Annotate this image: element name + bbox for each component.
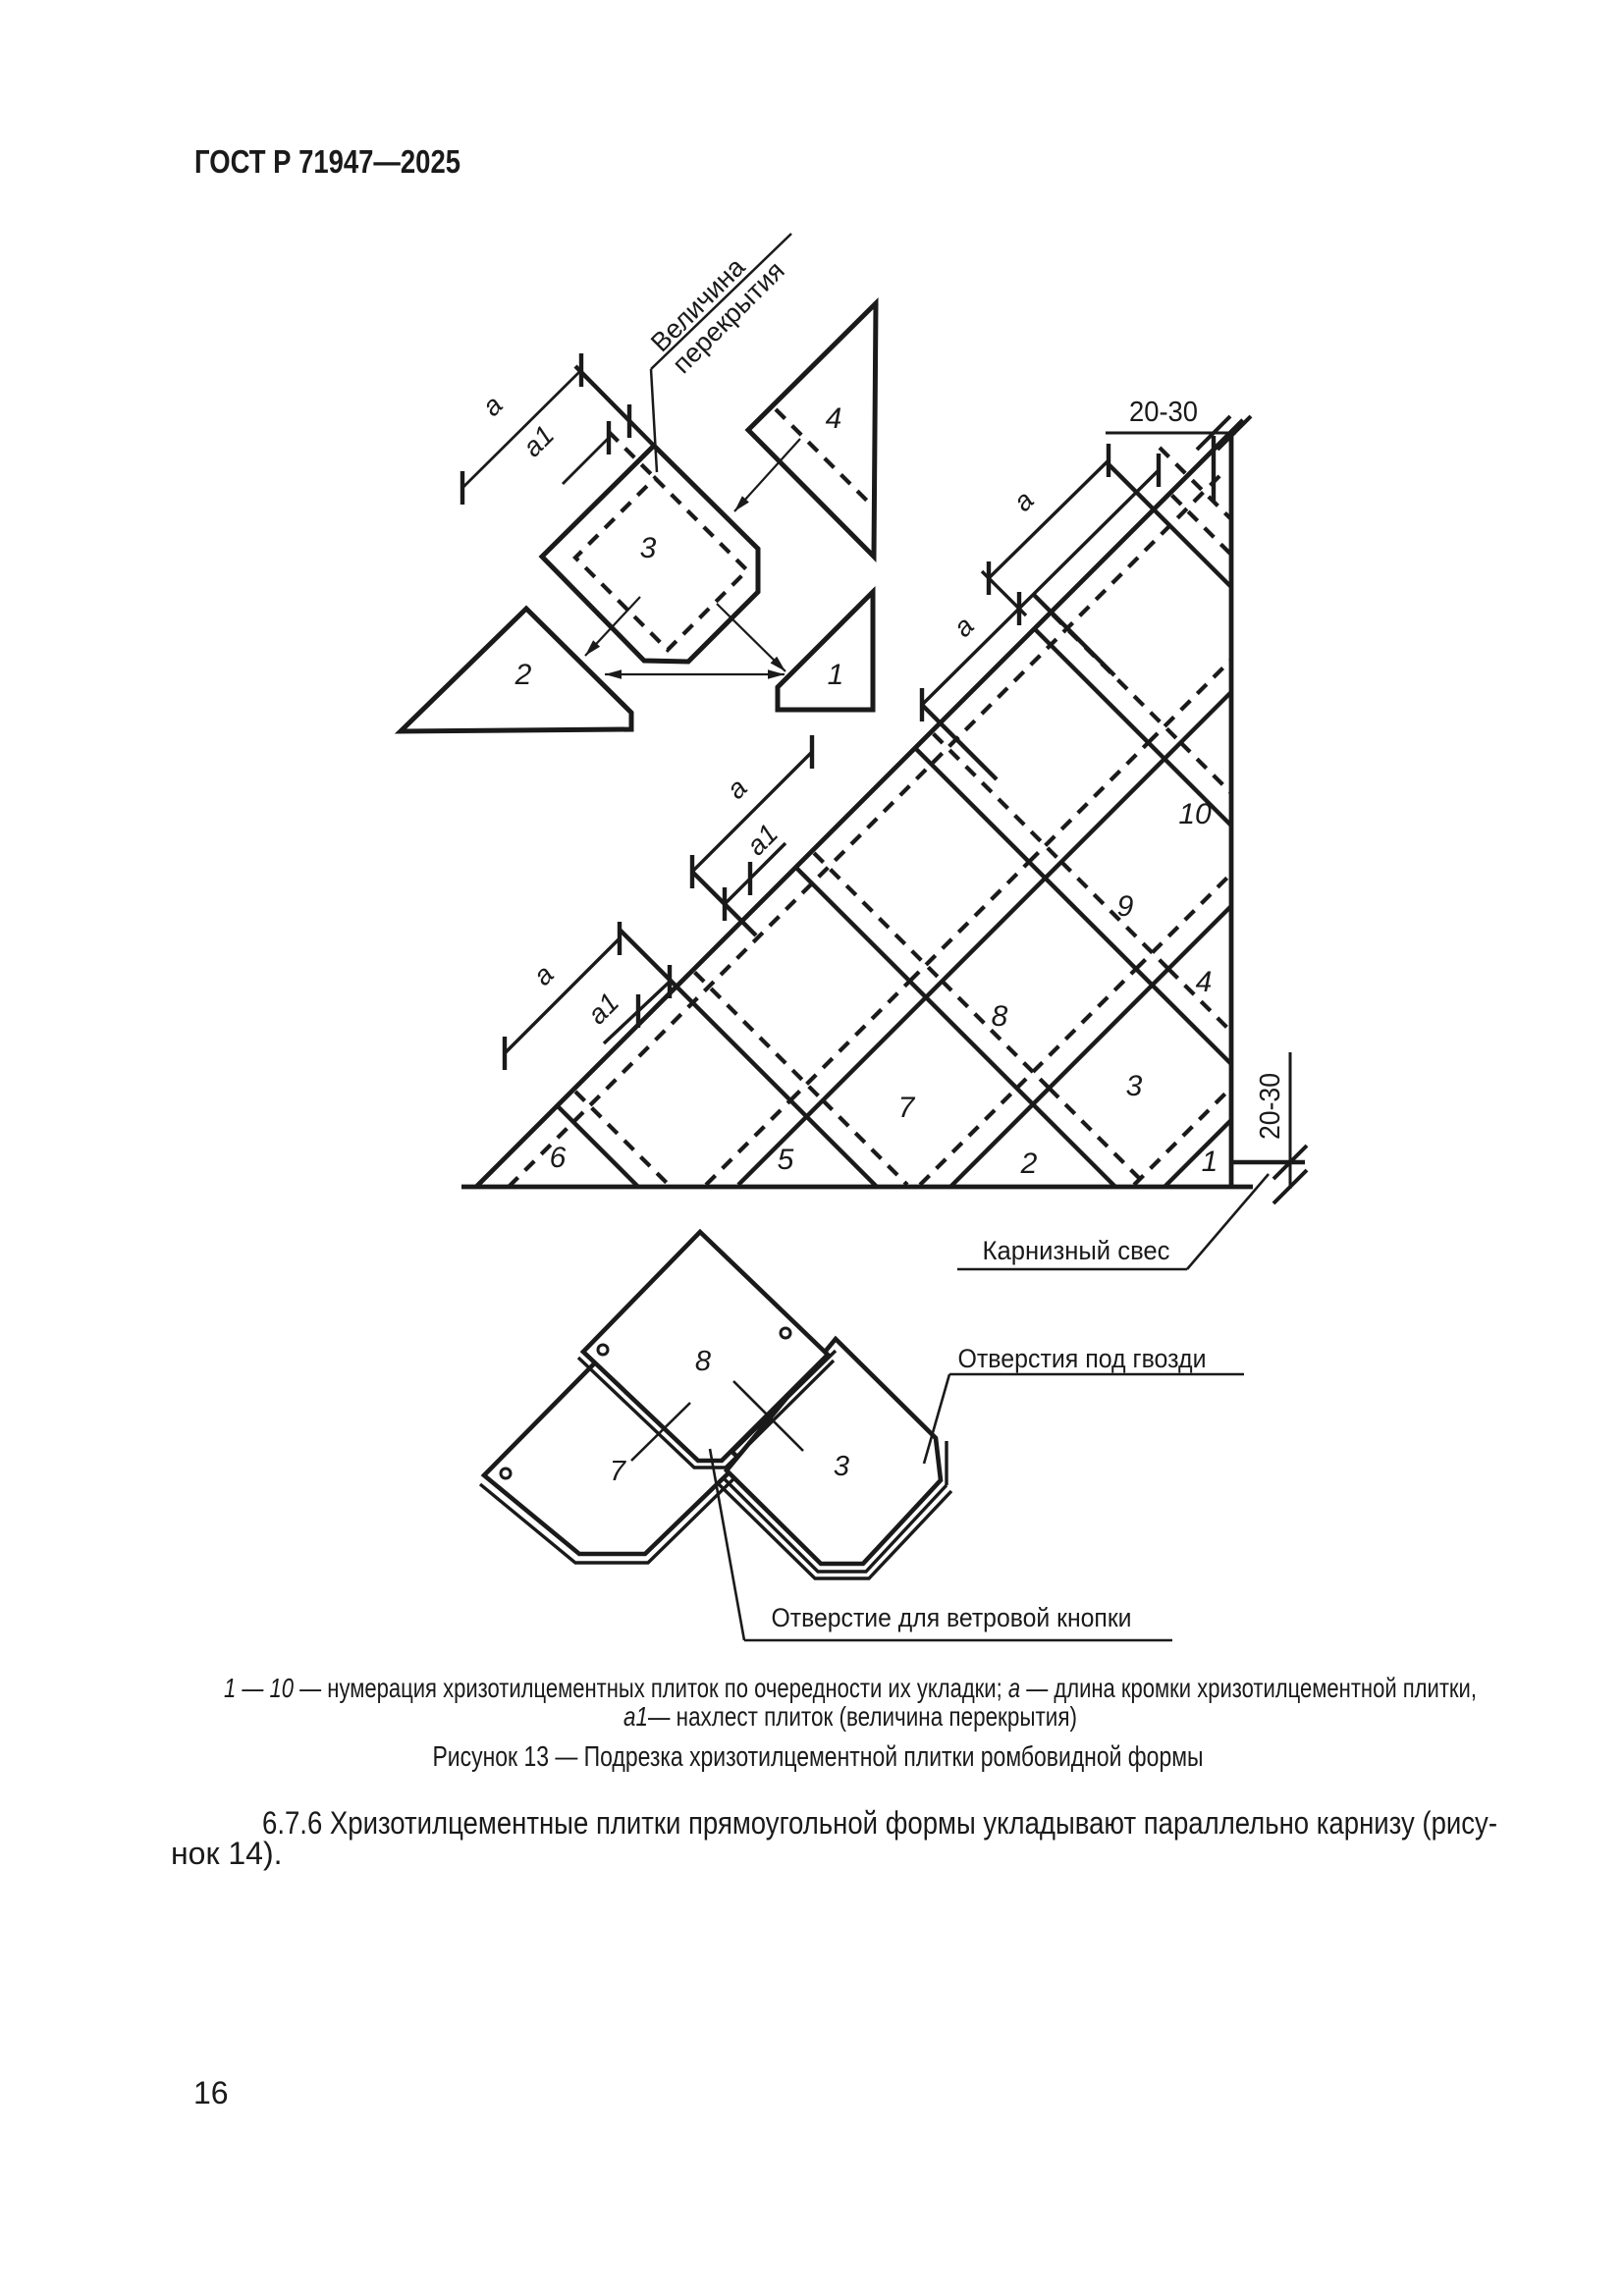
- svg-text:1: 1: [1202, 1146, 1218, 1178]
- svg-text:ГОСТ Р 71947—2025: ГОСТ Р 71947—2025: [194, 143, 460, 180]
- svg-text:4: 4: [1196, 966, 1213, 998]
- svg-text:16: 16: [193, 2075, 229, 2110]
- svg-text:8: 8: [992, 1000, 1008, 1033]
- svg-text:5: 5: [778, 1144, 794, 1176]
- svg-text:1 — 10 — нумерация хризотилцем: 1 — 10 — нумерация хризотилцементных пли…: [224, 1673, 1477, 1703]
- svg-text:Отверстие для ветровой кнопки: Отверстие для ветровой кнопки: [772, 1603, 1132, 1632]
- svg-text:9: 9: [1117, 890, 1134, 923]
- svg-text:3: 3: [640, 532, 657, 564]
- svg-text:Отверстия под гвозди: Отверстия под гвозди: [958, 1344, 1207, 1373]
- svg-text:8: 8: [695, 1346, 711, 1377]
- svg-text:нок 14).: нок 14).: [171, 1836, 283, 1871]
- svg-text:7: 7: [898, 1092, 916, 1124]
- svg-text:20-30: 20-30: [1255, 1073, 1286, 1140]
- svg-text:3: 3: [1126, 1070, 1143, 1102]
- svg-text:7: 7: [610, 1456, 627, 1487]
- svg-text:а1— нахлест плиток (величина п: а1— нахлест плиток (величина перекрытия): [623, 1701, 1077, 1732]
- svg-text:1: 1: [828, 659, 844, 691]
- svg-text:6: 6: [550, 1142, 567, 1174]
- svg-text:2: 2: [1020, 1148, 1038, 1180]
- svg-text:20-30: 20-30: [1129, 397, 1198, 428]
- svg-text:Карнизный свес: Карнизный свес: [983, 1236, 1170, 1265]
- svg-text:3: 3: [834, 1451, 849, 1482]
- svg-text:4: 4: [826, 402, 842, 435]
- svg-text:10: 10: [1178, 798, 1212, 830]
- svg-text:Рисунок 13 — Подрезка хризотил: Рисунок 13 — Подрезка хризотилцементной …: [433, 1741, 1204, 1773]
- svg-text:2: 2: [514, 659, 532, 691]
- svg-text:6.7.6 Хризотилцементные плитки: 6.7.6 Хризотилцементные плитки прямоугол…: [262, 1805, 1497, 1841]
